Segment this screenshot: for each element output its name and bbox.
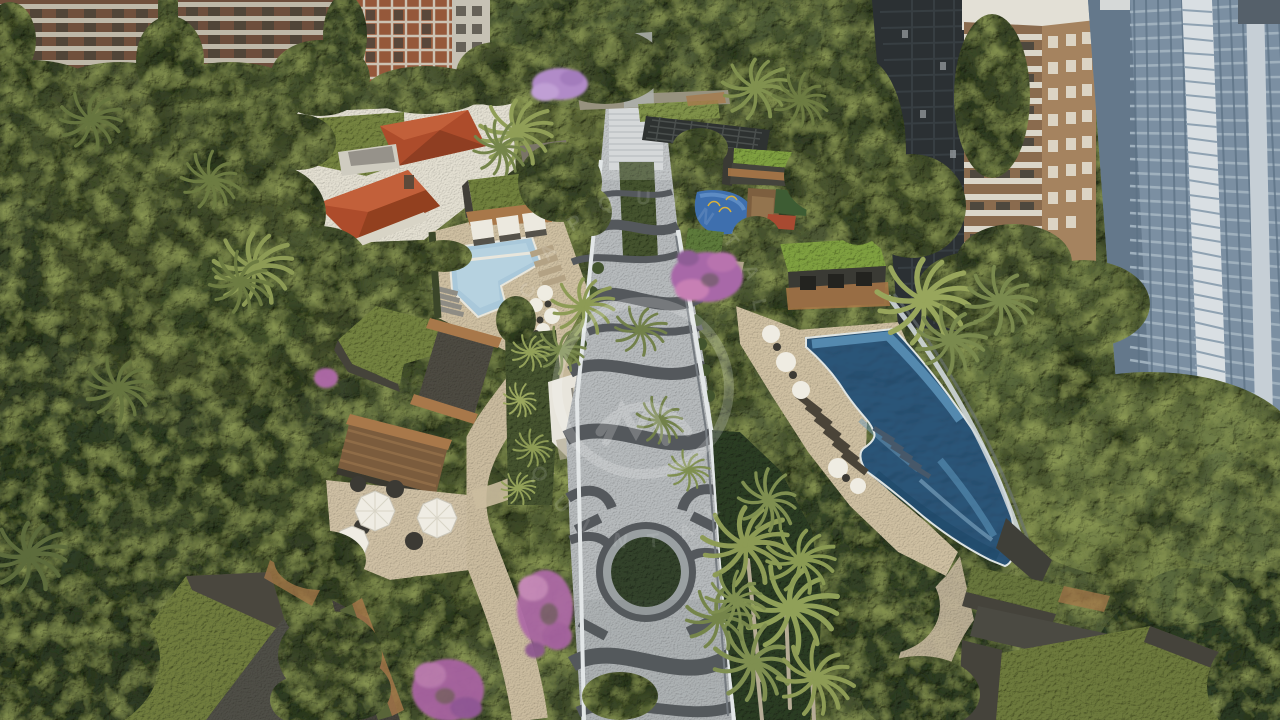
svg-text:U: U [636,187,651,209]
svg-text:T: T [646,530,660,553]
